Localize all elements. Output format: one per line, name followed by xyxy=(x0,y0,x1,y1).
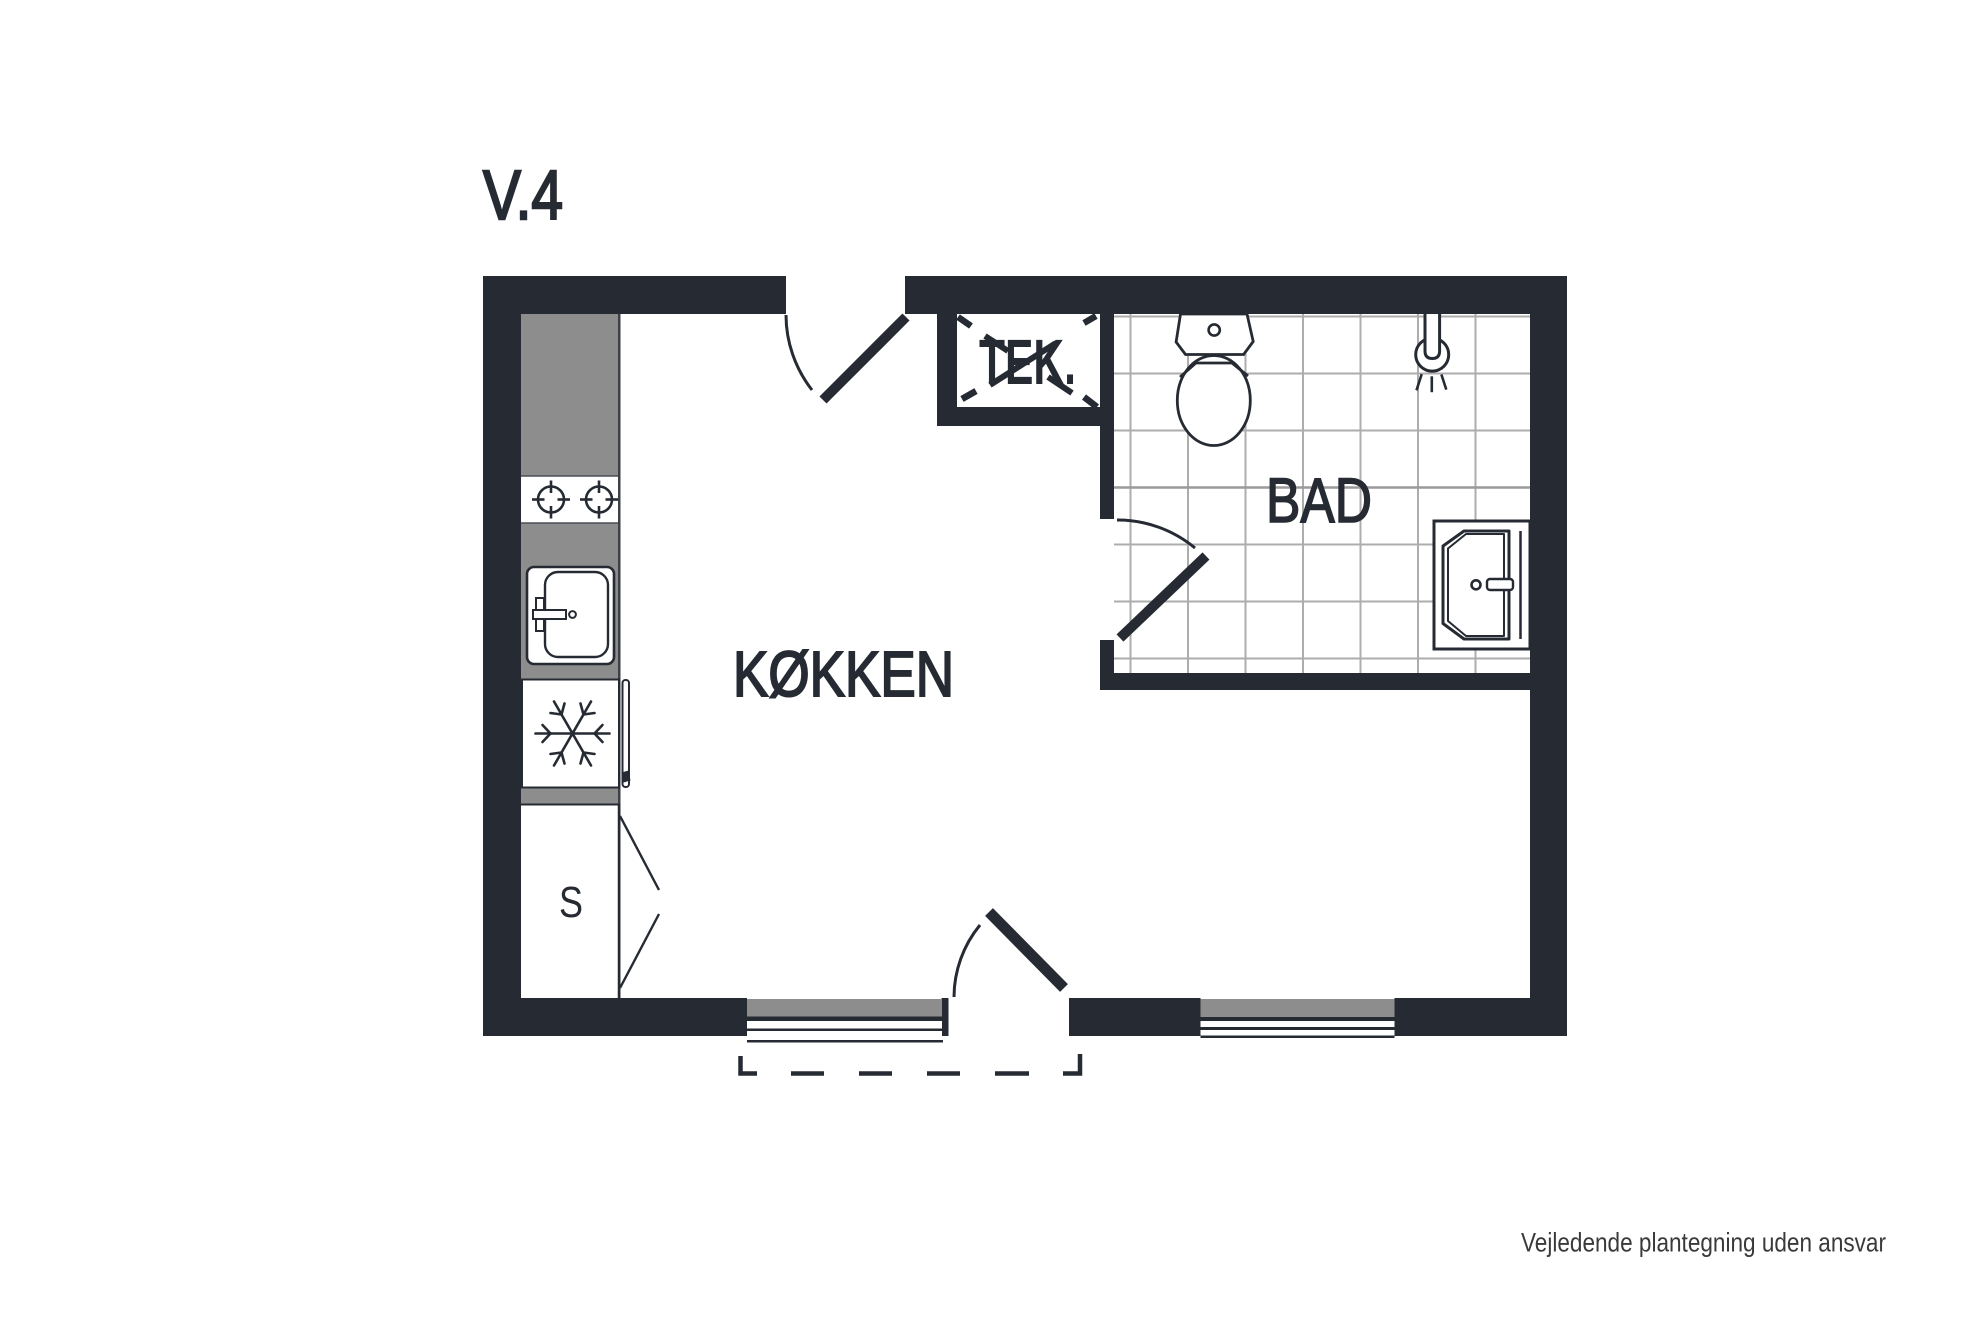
svg-text:KØKKEN: KØKKEN xyxy=(733,638,954,710)
svg-text:BAD: BAD xyxy=(1266,466,1372,536)
svg-text:V.4: V.4 xyxy=(483,156,563,234)
svg-text:S: S xyxy=(559,878,583,927)
svg-text:TEK.: TEK. xyxy=(979,326,1076,398)
svg-text:Vejledende plantegning uden an: Vejledende plantegning uden ansvar xyxy=(1521,1228,1886,1258)
